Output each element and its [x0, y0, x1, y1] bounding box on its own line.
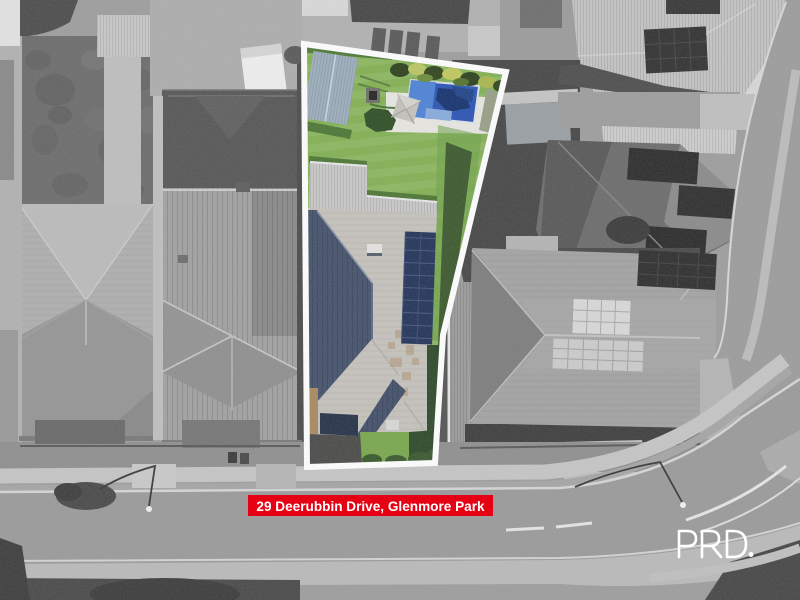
svg-text:29 Deerubbin Drive, Glenmore P: 29 Deerubbin Drive, Glenmore Park [256, 499, 485, 514]
